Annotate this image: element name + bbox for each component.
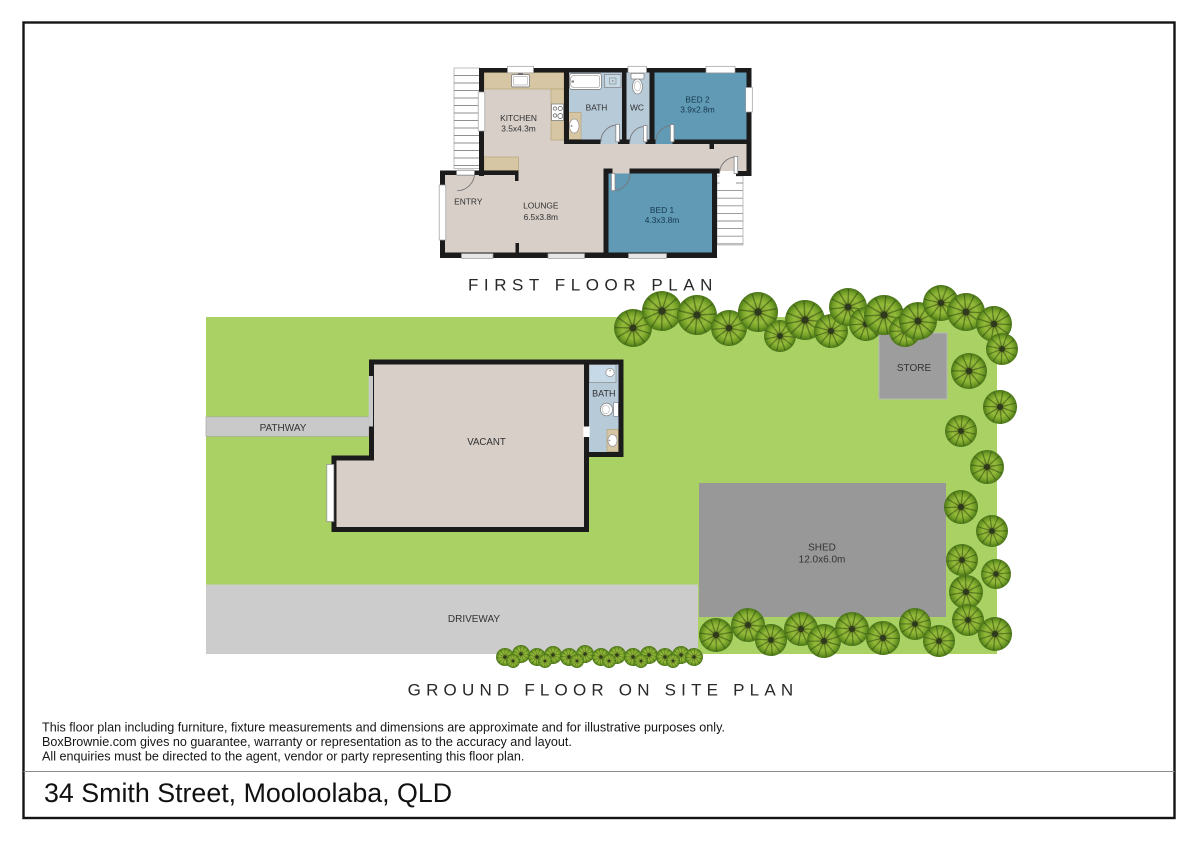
svg-text:STORE: STORE — [897, 363, 932, 374]
svg-text:ENTRY: ENTRY — [454, 197, 483, 207]
svg-text:LOUNGE: LOUNGE — [523, 201, 559, 211]
svg-text:4.3x3.8m: 4.3x3.8m — [645, 215, 679, 225]
svg-text:BATH: BATH — [592, 389, 615, 399]
svg-text:6.5x3.8m: 6.5x3.8m — [524, 212, 558, 222]
svg-text:34 Smith Street, Mooloolaba, Q: 34 Smith Street, Mooloolaba, QLD — [44, 778, 452, 808]
svg-text:All enquiries must be directed: All enquiries must be directed to the ag… — [42, 750, 524, 764]
svg-text:FIRST FLOOR PLAN: FIRST FLOOR PLAN — [468, 276, 718, 295]
svg-text:SHED: SHED — [808, 543, 836, 554]
svg-text:KITCHEN: KITCHEN — [500, 113, 537, 123]
svg-text:BED 2: BED 2 — [685, 95, 710, 105]
svg-text:GROUND FLOOR ON SITE PLAN: GROUND FLOOR ON SITE PLAN — [408, 681, 799, 700]
svg-text:3.5x4.3m: 3.5x4.3m — [501, 124, 535, 134]
svg-text:VACANT: VACANT — [467, 437, 506, 448]
svg-text:BoxBrownie.com gives no guaran: BoxBrownie.com gives no guarantee, warra… — [42, 735, 572, 749]
svg-text:DRIVEWAY: DRIVEWAY — [448, 614, 501, 625]
svg-text:3.9x2.8m: 3.9x2.8m — [680, 105, 714, 115]
svg-text:BATH: BATH — [586, 103, 608, 113]
svg-text:PATHWAY: PATHWAY — [260, 423, 307, 434]
svg-text:WC: WC — [630, 103, 644, 113]
svg-text:This floor plan including furn: This floor plan including furniture, fix… — [42, 721, 725, 735]
svg-text:BED 1: BED 1 — [650, 205, 675, 215]
svg-text:12.0x6.0m: 12.0x6.0m — [799, 555, 846, 566]
